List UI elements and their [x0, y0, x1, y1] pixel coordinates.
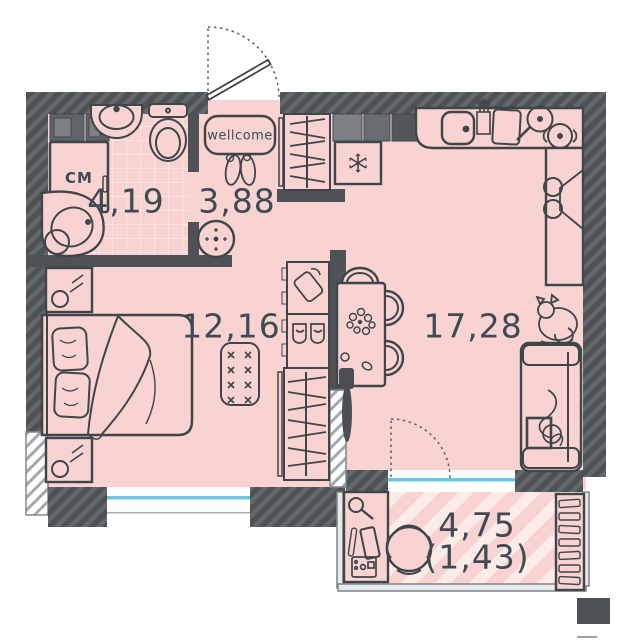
shoe-cabinet-icon [282, 314, 329, 368]
bedroom-area-label: 12,16 [181, 307, 280, 346]
double-bed-icon [42, 315, 192, 439]
desk-icon [344, 492, 388, 582]
washing-machine-label: СМ [65, 169, 93, 187]
floor-plan: 4,19 3,88 12,16 17,28 4,75 (1,43) СМ wel… [0, 0, 624, 640]
balcony-door-window [388, 470, 515, 492]
balcony-area-reduced-label: (1,43) [424, 538, 529, 577]
bedroom-window [107, 487, 250, 527]
wall-bathroom-south [26, 255, 232, 267]
wall-block-bottom-right [577, 598, 610, 624]
wall-living-south-right [515, 470, 583, 492]
nightstand-icon [46, 268, 92, 312]
wall-bathroom-divider-upper [188, 114, 199, 172]
entrance-door-icon [207, 27, 280, 100]
wall-right [583, 92, 606, 477]
ottoman-icon [221, 343, 259, 405]
wall-left-light [26, 432, 48, 515]
fridge-icon [335, 142, 381, 184]
toilet-icon [149, 104, 187, 161]
wall-bottom-bedroom-right [250, 487, 345, 527]
wall-bottom-bedroom-left [48, 487, 107, 527]
doormat-label: wellcome [207, 129, 273, 144]
bathroom-area-label: 4,19 [87, 182, 164, 221]
pouf-icon [198, 221, 234, 257]
shelving-unit-icon [556, 494, 584, 590]
nightstand-icon [46, 438, 92, 482]
bag-cabinet-icon [282, 262, 329, 314]
hallway-area-label: 3,88 [198, 182, 275, 221]
wall-living-south-left [346, 470, 388, 492]
hallway-wardrobe-icon [279, 114, 330, 190]
kitchen-cabinets-icon [333, 114, 420, 141]
living-area-label: 17,28 [423, 307, 522, 346]
bedroom-wardrobe-icon [278, 368, 329, 480]
balcony-wall-left [337, 492, 343, 588]
balcony-wall-bottom [338, 584, 586, 591]
sofa-icon [521, 343, 581, 471]
